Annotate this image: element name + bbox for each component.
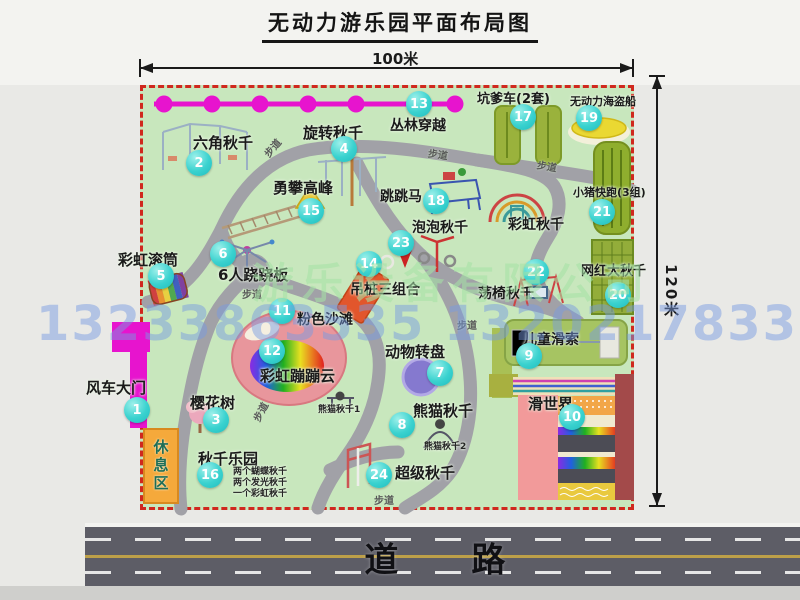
attraction-label-1: 风车大门 [86,381,146,396]
sub-label-1: 熊猫秋千2 [424,443,466,452]
attraction-label-15: 勇攀高峰 [273,181,333,196]
attraction-badge-24: 24 [366,462,392,488]
attraction-badge-2: 2 [186,150,212,176]
sub-label-2: 两个蝴蝶秋千 [233,468,287,477]
walkway-label-2: 步道 [536,156,558,174]
attraction-badge-21: 21 [589,199,615,225]
attraction-badge-13: 13 [406,91,432,117]
attraction-badge-4: 4 [331,136,357,162]
attraction-badge-18: 18 [423,188,449,214]
attraction-badge-7: 7 [427,360,453,386]
attraction-label-21: 小猪快跑(3组) [573,187,646,198]
road-label: 道 路 [349,532,536,581]
rest-area-label: 休息区 [151,439,172,493]
attraction-badge-1: 1 [124,397,150,423]
walkway-label-6: 步道 [374,492,394,507]
attraction-label-4: 旋转秋千 [303,126,363,141]
attraction-label-彩虹秋千: 彩虹秋千 [508,218,564,232]
walkway-label-1: 步道 [427,145,449,163]
road: 道 路 [85,527,800,586]
attraction-badge-10: 10 [559,404,585,430]
page-title: 无动力游乐园平面布局图 [262,7,538,43]
attraction-badge-8: 8 [389,412,415,438]
sub-label-0: 熊猫秋千1 [318,406,360,415]
attraction-label-24: 超级秋千 [395,466,455,481]
attraction-badge-6: 6 [210,241,236,267]
screenshot: 无动力游乐园平面布局图 100米 120米 [0,0,800,600]
attraction-label-18: 跳跳马 [380,190,422,204]
attraction-label-8: 熊猫秋千 [413,404,473,419]
attraction-label-23: 泡泡秋千 [412,221,468,235]
attraction-badge-3: 3 [203,407,229,433]
attraction-label-12: 彩虹蹦蹦云 [260,369,335,384]
attraction-badge-17: 17 [510,104,536,130]
bottom-margin [0,586,800,600]
sub-label-3: 两个发光秋千 [233,479,287,488]
attraction-badge-5: 5 [148,263,174,289]
attraction-label-19: 无动力海盗船 [570,96,636,107]
sub-label-4: 一个彩虹秋千 [233,490,287,499]
rest-area: 休息区 [143,428,179,504]
attraction-badge-16: 16 [197,462,223,488]
attraction-badge-15: 15 [298,198,324,224]
dimension-width-label: 100米 [372,48,418,69]
attraction-label-17: 坑爹车(2套) [477,93,550,106]
attraction-label-2: 六角秋千 [193,136,253,151]
attraction-label-13: 丛林穿越 [390,119,446,133]
watermark-phone: 13233863535 13202178333 [36,296,800,352]
attraction-badge-19: 19 [576,105,602,131]
